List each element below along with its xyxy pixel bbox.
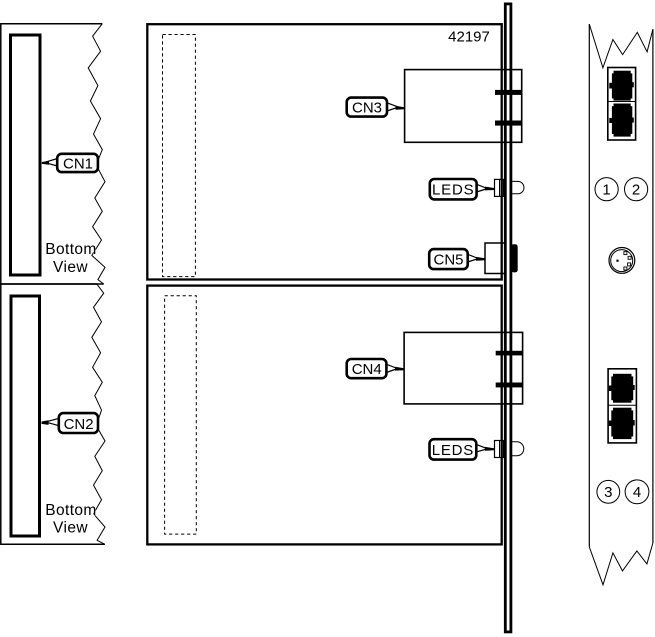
svg-text:CN3: CN3 [352,100,382,117]
svg-text:1: 1 [602,182,610,199]
svg-text:CN4: CN4 [352,361,382,378]
svg-text:LEDS: LEDS [432,182,474,199]
svg-text:LEDS: LEDS [432,442,474,459]
svg-text:Bottom: Bottom [45,502,97,519]
svg-text:View: View [53,259,88,276]
svg-text:CN1: CN1 [63,155,93,172]
svg-text:4: 4 [633,484,641,501]
svg-text:CN5: CN5 [433,252,463,269]
svg-text:3: 3 [604,484,612,501]
svg-text:42197: 42197 [448,28,490,45]
svg-text:CN2: CN2 [64,416,94,433]
svg-text:2: 2 [632,182,640,199]
svg-text:View: View [53,520,88,537]
svg-text:Bottom: Bottom [45,241,97,258]
